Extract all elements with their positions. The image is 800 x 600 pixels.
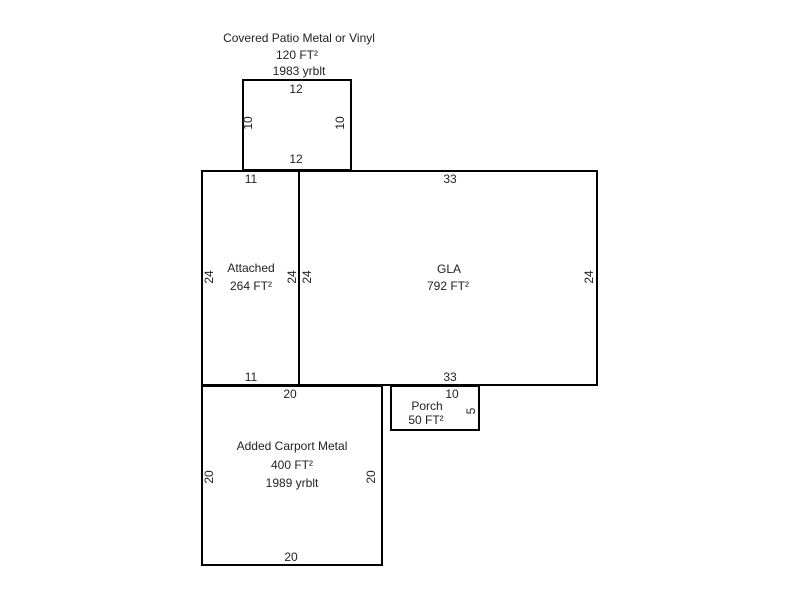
floorplan-sketch: Covered Patio Metal or Vinyl 120 FT² 198… <box>0 0 800 600</box>
patio-bottom-dimension: 12 <box>289 153 302 165</box>
porch-top-dimension: 10 <box>445 388 458 400</box>
gla-area-label: 792 FT² <box>427 280 469 292</box>
attached-bottom-dimension: 11 <box>245 371 257 383</box>
patio-year-built-label: 1983 yrblt <box>273 65 326 77</box>
porch-right-dimension: 5 <box>465 408 477 415</box>
patio-left-dimension: 10 <box>242 116 254 129</box>
carport-top-dimension: 20 <box>283 388 296 400</box>
main-structure-outline <box>201 170 598 386</box>
porch-title: Porch <box>411 400 442 412</box>
patio-area-label: 120 FT² <box>276 49 318 61</box>
patio-right-dimension: 10 <box>334 116 346 129</box>
patio-top-dimension: 12 <box>289 83 302 95</box>
attached-top-dimension: 11 <box>245 173 257 185</box>
patio-title: Covered Patio Metal or Vinyl <box>223 32 375 44</box>
porch-area-label: 50 FT² <box>408 414 443 426</box>
carport-area-label: 400 FT² <box>271 459 313 471</box>
carport-title: Added Carport Metal <box>237 440 348 452</box>
attached-area-label: 264 FT² <box>230 280 272 292</box>
attached-right-dimension: 24 <box>286 270 298 283</box>
carport-right-dimension: 20 <box>365 470 377 483</box>
gla-top-dimension: 33 <box>443 173 456 185</box>
gla-left-dimension: 24 <box>301 270 313 283</box>
carport-left-dimension: 20 <box>203 470 215 483</box>
carport-bottom-dimension: 20 <box>284 551 297 563</box>
gla-title: GLA <box>437 263 461 275</box>
attached-title: Attached <box>227 262 274 274</box>
carport-year-built-label: 1989 yrblt <box>266 477 319 489</box>
gla-right-dimension: 24 <box>583 270 595 283</box>
attached-left-dimension: 24 <box>203 270 215 283</box>
gla-bottom-dimension: 33 <box>443 371 456 383</box>
